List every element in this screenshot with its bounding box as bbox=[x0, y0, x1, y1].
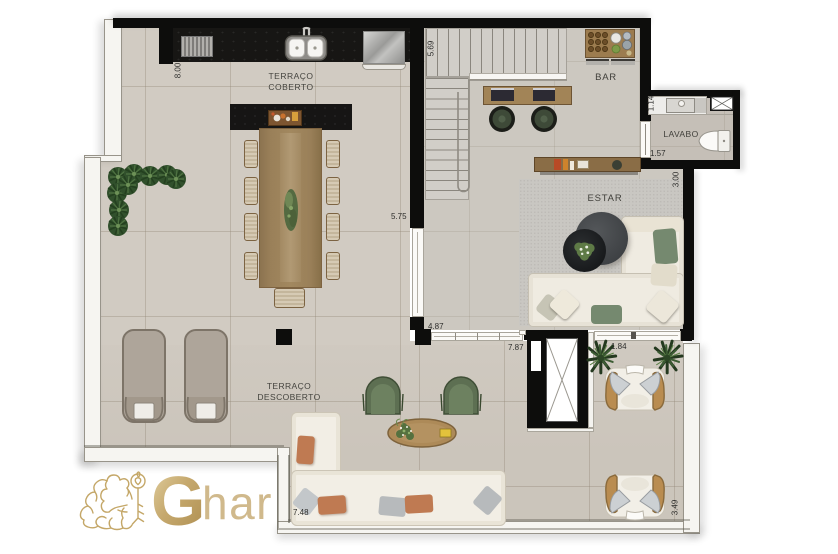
svg-text:har: har bbox=[202, 477, 273, 529]
svg-text:G: G bbox=[151, 468, 205, 538]
